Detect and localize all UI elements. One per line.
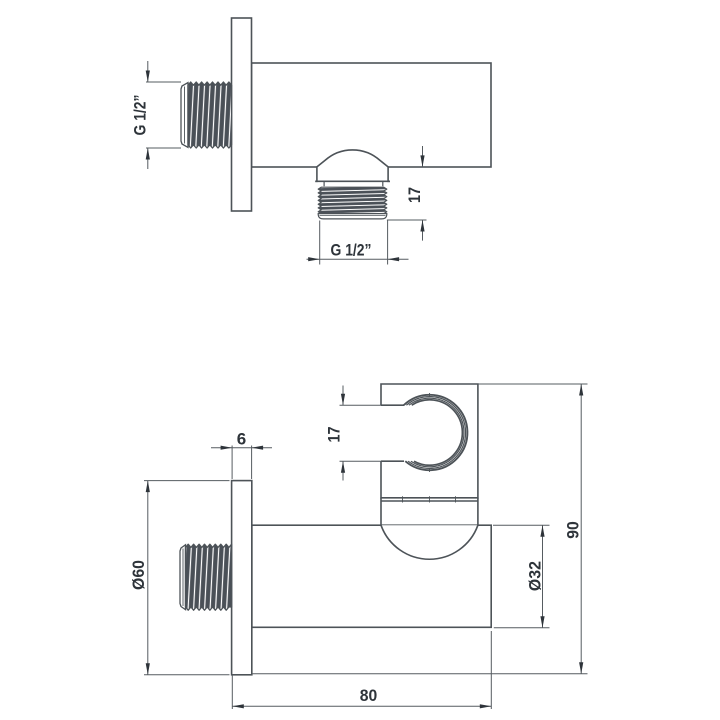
svg-text:80: 80 xyxy=(360,686,378,705)
svg-text:G 1/2”: G 1/2” xyxy=(331,241,372,260)
svg-text:Ø60: Ø60 xyxy=(129,560,148,590)
svg-text:Ø32: Ø32 xyxy=(525,561,544,591)
svg-text:17: 17 xyxy=(405,187,424,203)
svg-text:6: 6 xyxy=(237,430,246,449)
svg-text:17: 17 xyxy=(325,427,344,443)
svg-text:G 1/2”: G 1/2” xyxy=(130,95,149,136)
svg-text:90: 90 xyxy=(563,521,582,539)
